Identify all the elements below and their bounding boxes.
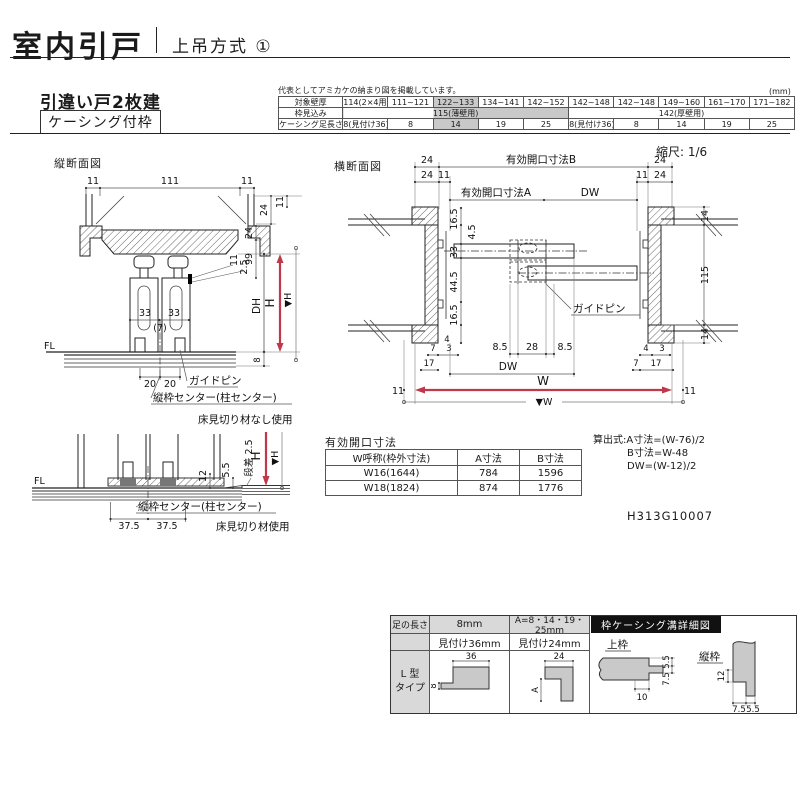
spec-table: 対象壁厚 114(2×4用) 111~121 122~133 134~141 1… bbox=[278, 96, 795, 130]
vs-dim-33-left: 33 bbox=[139, 308, 151, 319]
vs-dim-24b: 24 bbox=[244, 227, 255, 239]
ts-hv-label: ▼H bbox=[270, 451, 281, 465]
hs-openB-label: 有効開口寸法B bbox=[506, 153, 576, 166]
hs-dim-85-right: 8.5 bbox=[557, 342, 572, 353]
leg-sub3: 見付け24mm bbox=[510, 634, 589, 650]
hs-dim-11-br: 11 bbox=[636, 170, 648, 181]
ts-h-label: H bbox=[249, 451, 263, 460]
tf-75-dim: 7.5 bbox=[662, 672, 672, 686]
spec-row-wall: 対象壁厚 114(2×4用) 111~121 122~133 134~141 1… bbox=[279, 97, 795, 108]
hs-dim-7r: 7 bbox=[633, 359, 638, 369]
hs-dim-24-tr: 24 bbox=[654, 155, 666, 166]
leg-col1-header: 足の長さ bbox=[391, 616, 429, 633]
ts-55-label: 5.5 bbox=[221, 462, 232, 477]
hs-dim-17l: 17 bbox=[424, 359, 435, 369]
spec-cell: 14 bbox=[659, 119, 704, 130]
hs-guide-pin-label: ガイドピン bbox=[573, 303, 626, 315]
hs-right-casing-bottom bbox=[648, 325, 674, 343]
leg-table: 足の長さ 8mm A=8・14・19・25mm 見付け36mm 見付け24mm … bbox=[390, 615, 797, 714]
vs-dim-24a: 24 bbox=[259, 204, 270, 216]
opening-row-w18: W18(1824) 874 1776 bbox=[326, 481, 582, 496]
hs-dim-85-left: 8.5 bbox=[492, 342, 507, 353]
leg-sub3-label: 見付け24mm bbox=[518, 635, 580, 650]
ts-h-arrow bbox=[263, 432, 270, 486]
profile-36-shape bbox=[441, 667, 489, 689]
hs-dim-45: 4.5 bbox=[467, 224, 478, 239]
vs-dim-25: 2.5 bbox=[239, 259, 250, 274]
opening-row-w16: W16(1644) 784 1596 bbox=[326, 466, 582, 481]
frame-type-box: ケーシング付枠 bbox=[40, 110, 161, 134]
ts-floor-hatch bbox=[32, 491, 242, 500]
hs-dim-3l: 3 bbox=[446, 344, 451, 354]
spec-cell: 8 bbox=[614, 119, 659, 130]
vs-dim-33-right: 33 bbox=[168, 308, 180, 319]
vertical-section-title: 縦断面図 bbox=[54, 155, 102, 171]
opening-table: W呼称(枠外寸法) A寸法 B寸法 W16(1644) 784 1596 W18… bbox=[325, 449, 582, 496]
vs-dim-20-left: 20 bbox=[144, 379, 156, 390]
vs-guide-pin-label: ガイドピン bbox=[189, 375, 242, 387]
vs-center-label: 縦枠センター(柱センター) bbox=[153, 391, 277, 404]
profile-24-drawing: 24 A bbox=[513, 651, 587, 713]
side-frame-label: 縦枠 bbox=[699, 650, 720, 663]
opening-cell: 784 bbox=[458, 466, 520, 481]
spec-row-leg: ケーシング足長さ 8(見付け36) 8 14 19 25 8(見付け36) 8 … bbox=[279, 119, 795, 130]
leg-col2-label: 8mm bbox=[457, 619, 483, 630]
hs-left-casing-top bbox=[412, 207, 438, 225]
hs-dim-14b: 14 bbox=[700, 328, 711, 340]
spec-cell: 19 bbox=[704, 119, 749, 130]
leg-type-line1: L 型 bbox=[401, 668, 420, 682]
profile-a-dim: A bbox=[531, 687, 541, 693]
hs-left-wall bbox=[348, 219, 425, 331]
vertical-section-drawing: 11 111 11 33 33 (7) FL bbox=[40, 170, 310, 438]
vs-header-beam bbox=[102, 230, 238, 254]
spec-cell: 111~121 bbox=[388, 97, 433, 108]
ts-dim-375-right: 37.5 bbox=[156, 521, 177, 532]
formula-dw: DW=(W-12)/2 bbox=[593, 460, 705, 473]
spec-cell: 171~182 bbox=[749, 97, 794, 108]
leg-type-line2: タイプ bbox=[395, 682, 425, 696]
detail-title: 枠ケーシング溝詳細図 bbox=[601, 617, 711, 632]
doc-number: H313G10007 bbox=[627, 509, 713, 523]
hs-dw-top-label: DW bbox=[581, 187, 600, 199]
horizontal-section-drawing: 24 有効開口寸法B 24 24 11 11 24 有効開口寸法A DW bbox=[328, 152, 800, 410]
spec-cell: 8(見付け36) bbox=[569, 119, 614, 130]
spec-cell: 25 bbox=[523, 119, 568, 130]
hs-dim-3r: 3 bbox=[659, 344, 664, 354]
hs-dim-445: 44.5 bbox=[449, 271, 460, 292]
hs-openA-label: 有効開口寸法A bbox=[461, 186, 532, 199]
sf-55-dim: 5.5 bbox=[746, 705, 760, 712]
vs-hv-label: ▼H bbox=[283, 293, 294, 307]
vs-wall-break-marks bbox=[96, 196, 246, 224]
spec-cell: 149~160 bbox=[659, 97, 704, 108]
spec-note: 代表としてアミカケの納まり図を掲載しています。 bbox=[278, 85, 461, 96]
ts-raised-floor bbox=[224, 486, 290, 495]
hs-dim-11-bl: 11 bbox=[438, 170, 450, 181]
profile-36-drawing: 36 8 bbox=[431, 651, 509, 713]
ts-fl-label: FL bbox=[34, 476, 45, 487]
ts-socket-left bbox=[120, 478, 136, 486]
spec-cell: 8(見付け36) bbox=[343, 119, 388, 130]
leg-col3-label: A=8・14・19・25mm bbox=[510, 613, 589, 636]
tf-55-dim: 5.5 bbox=[662, 655, 672, 669]
opening-header-row: W呼称(枠外寸法) A寸法 B寸法 bbox=[326, 450, 582, 466]
hs-dim-14t: 14 bbox=[700, 210, 711, 222]
hs-dim-33: 33 bbox=[449, 246, 460, 258]
product-rule bbox=[10, 133, 790, 134]
formulas: 算出式:A寸法=(W-76)/2 B寸法=W-48 DW=(W-12)/2 bbox=[593, 434, 705, 473]
hs-dim-7l: 7 bbox=[430, 344, 435, 354]
hs-left-jamb bbox=[425, 225, 438, 325]
formula-a: 算出式:A寸法=(W-76)/2 bbox=[593, 434, 705, 447]
page-title: 室内引戸 bbox=[12, 22, 144, 66]
vs-hanger-roller-right bbox=[168, 256, 188, 278]
opening-header-a: A寸法 bbox=[458, 450, 520, 466]
hs-dim-115: 115 bbox=[700, 266, 711, 284]
leg-col3-header: A=8・14・19・25mm bbox=[510, 616, 589, 633]
spec-row-depth: 枠見込み 115(薄壁用) 142(厚壁用) bbox=[279, 108, 795, 119]
hs-left-notch-bottom bbox=[438, 300, 443, 308]
hs-dim-28: 28 bbox=[526, 342, 538, 353]
hs-dim-165b: 16.5 bbox=[449, 304, 460, 325]
spec-cell: 142~148 bbox=[614, 97, 659, 108]
vs-dim-11a: 11 bbox=[275, 196, 286, 208]
profile-8-dim: 8 bbox=[431, 683, 439, 688]
leg-col1-label: 足の長さ bbox=[392, 618, 428, 631]
spec-cell: 142~152 bbox=[523, 97, 568, 108]
vs-wall-lines bbox=[86, 194, 254, 226]
ts-dim-375-left: 37.5 bbox=[118, 521, 139, 532]
vs-dim-20-right: 20 bbox=[164, 379, 176, 390]
top-frame-label: 上枠 bbox=[607, 638, 628, 651]
ts-center-label: 縦枠センター(柱センター) bbox=[138, 500, 262, 513]
vs-fl-label: FL bbox=[44, 341, 55, 352]
page-subtitle: 上吊方式 ① bbox=[172, 32, 273, 57]
spec-cell-depth-thick: 142(厚壁用) bbox=[569, 108, 795, 119]
spec-unit: (mm) bbox=[769, 87, 791, 96]
spec-row-label: 枠見込み bbox=[279, 108, 343, 119]
spec-row-label: ケーシング足長さ bbox=[279, 119, 343, 130]
leg-col2-header: 8mm bbox=[430, 616, 509, 633]
spec-cell-shaded: 122~133 bbox=[433, 97, 478, 108]
hs-right-casing-top bbox=[648, 207, 674, 225]
opening-cell: W16(1644) bbox=[326, 466, 458, 481]
hs-dim-11-wl: 11 bbox=[392, 386, 404, 397]
profile-24-shape bbox=[545, 667, 573, 701]
threshold-drawing: FL 段差 2.5 5.5 12 H ▼H 縦枠センター(柱センター) 37.5… bbox=[28, 430, 318, 545]
leg-sub2: 見付け36mm bbox=[430, 634, 509, 650]
spec-cell: 142~148 bbox=[569, 97, 614, 108]
hs-left-breaks bbox=[364, 214, 390, 342]
spec-row-label: 対象壁厚 bbox=[279, 97, 343, 108]
spec-cell: 161~170 bbox=[704, 97, 749, 108]
hs-dim-24-br: 24 bbox=[654, 170, 666, 181]
opening-table-title: 有効開口寸法 bbox=[325, 434, 397, 450]
hs-left-notch-top bbox=[438, 240, 443, 248]
hs-dim-11-wr: 11 bbox=[684, 386, 696, 397]
opening-cell: 874 bbox=[458, 481, 520, 496]
tf-10-dim: 10 bbox=[637, 693, 648, 703]
hs-right-notch-top bbox=[643, 240, 648, 248]
vs-casing-left bbox=[80, 226, 102, 256]
top-frame-shape bbox=[599, 658, 663, 680]
side-frame-shape bbox=[733, 642, 755, 696]
spec-cell: 114(2×4用) bbox=[343, 97, 388, 108]
ts-12-label: 12 bbox=[198, 470, 209, 482]
hs-right-notch-bottom bbox=[643, 300, 648, 308]
spec-cell-shaded: 14 bbox=[433, 119, 478, 130]
profile-24-dim: 24 bbox=[554, 652, 565, 662]
opening-header-name: W呼称(枠外寸法) bbox=[326, 450, 458, 466]
sf-12-dim: 12 bbox=[717, 671, 727, 682]
hs-w-label: W bbox=[537, 374, 549, 388]
spec-cell: 134~141 bbox=[478, 97, 523, 108]
spec-cell: 25 bbox=[749, 119, 794, 130]
detail-title-box: 枠ケーシング溝詳細図 bbox=[591, 616, 721, 633]
profile-36-dim: 36 bbox=[466, 652, 477, 662]
hs-wv-label: ▼W bbox=[536, 397, 553, 408]
vs-top-dim bbox=[86, 188, 254, 196]
vs-dim-11-right: 11 bbox=[241, 176, 253, 187]
hs-dim-24-tl: 24 bbox=[421, 155, 433, 166]
leg-vline3 bbox=[589, 616, 590, 713]
vs-marker bbox=[188, 274, 192, 284]
hs-dim-4r: 4 bbox=[643, 344, 648, 354]
opening-cell: W18(1824) bbox=[326, 481, 458, 496]
hs-right-jamb bbox=[648, 225, 661, 325]
spec-cell: 8 bbox=[388, 119, 433, 130]
hs-dim-17r: 17 bbox=[651, 359, 662, 369]
vs-floor-hatch bbox=[64, 355, 236, 367]
formula-b: B寸法=W-48 bbox=[593, 447, 705, 460]
hs-dw-bottom-label: DW bbox=[499, 361, 518, 373]
opening-cell: 1776 bbox=[520, 481, 582, 496]
vs-h-label: H bbox=[263, 298, 277, 307]
hs-dim-24-bl: 24 bbox=[421, 170, 433, 181]
opening-cell: 1596 bbox=[520, 466, 582, 481]
vs-dh-label: DH bbox=[251, 298, 263, 314]
opening-header-b: B寸法 bbox=[520, 450, 582, 466]
vs-right-ext-lines bbox=[236, 196, 302, 366]
ts-socket-right bbox=[160, 478, 176, 486]
casing-groove-details: 上枠 5.5 7.5 10 縦枠 12 7.5 5.5 bbox=[591, 634, 795, 712]
leg-type-cell: L 型 タイプ bbox=[391, 651, 429, 713]
leg-col1-sub bbox=[391, 634, 429, 650]
spec-cell-depth-thin: 115(薄壁用) bbox=[343, 108, 569, 119]
spec-cell: 19 bbox=[478, 119, 523, 130]
header-rule bbox=[10, 57, 790, 58]
hs-left-casing-bottom bbox=[412, 325, 438, 343]
hs-guide-leader bbox=[546, 284, 571, 309]
vs-caption: 床見切り材なし使用 bbox=[198, 413, 293, 426]
hs-dim-165a: 16.5 bbox=[449, 208, 460, 229]
title-divider bbox=[156, 27, 157, 53]
vs-dim-111: 111 bbox=[161, 176, 179, 187]
vs-dim-8: 8 bbox=[253, 357, 263, 362]
vs-dim-11-left: 11 bbox=[87, 176, 99, 187]
vs-hanger-roller-left bbox=[134, 256, 154, 278]
ts-caption: 床見切り材使用 bbox=[216, 520, 290, 533]
leg-sub2-label: 見付け36mm bbox=[438, 635, 500, 650]
sf-75-dim: 7.5 bbox=[732, 705, 746, 712]
